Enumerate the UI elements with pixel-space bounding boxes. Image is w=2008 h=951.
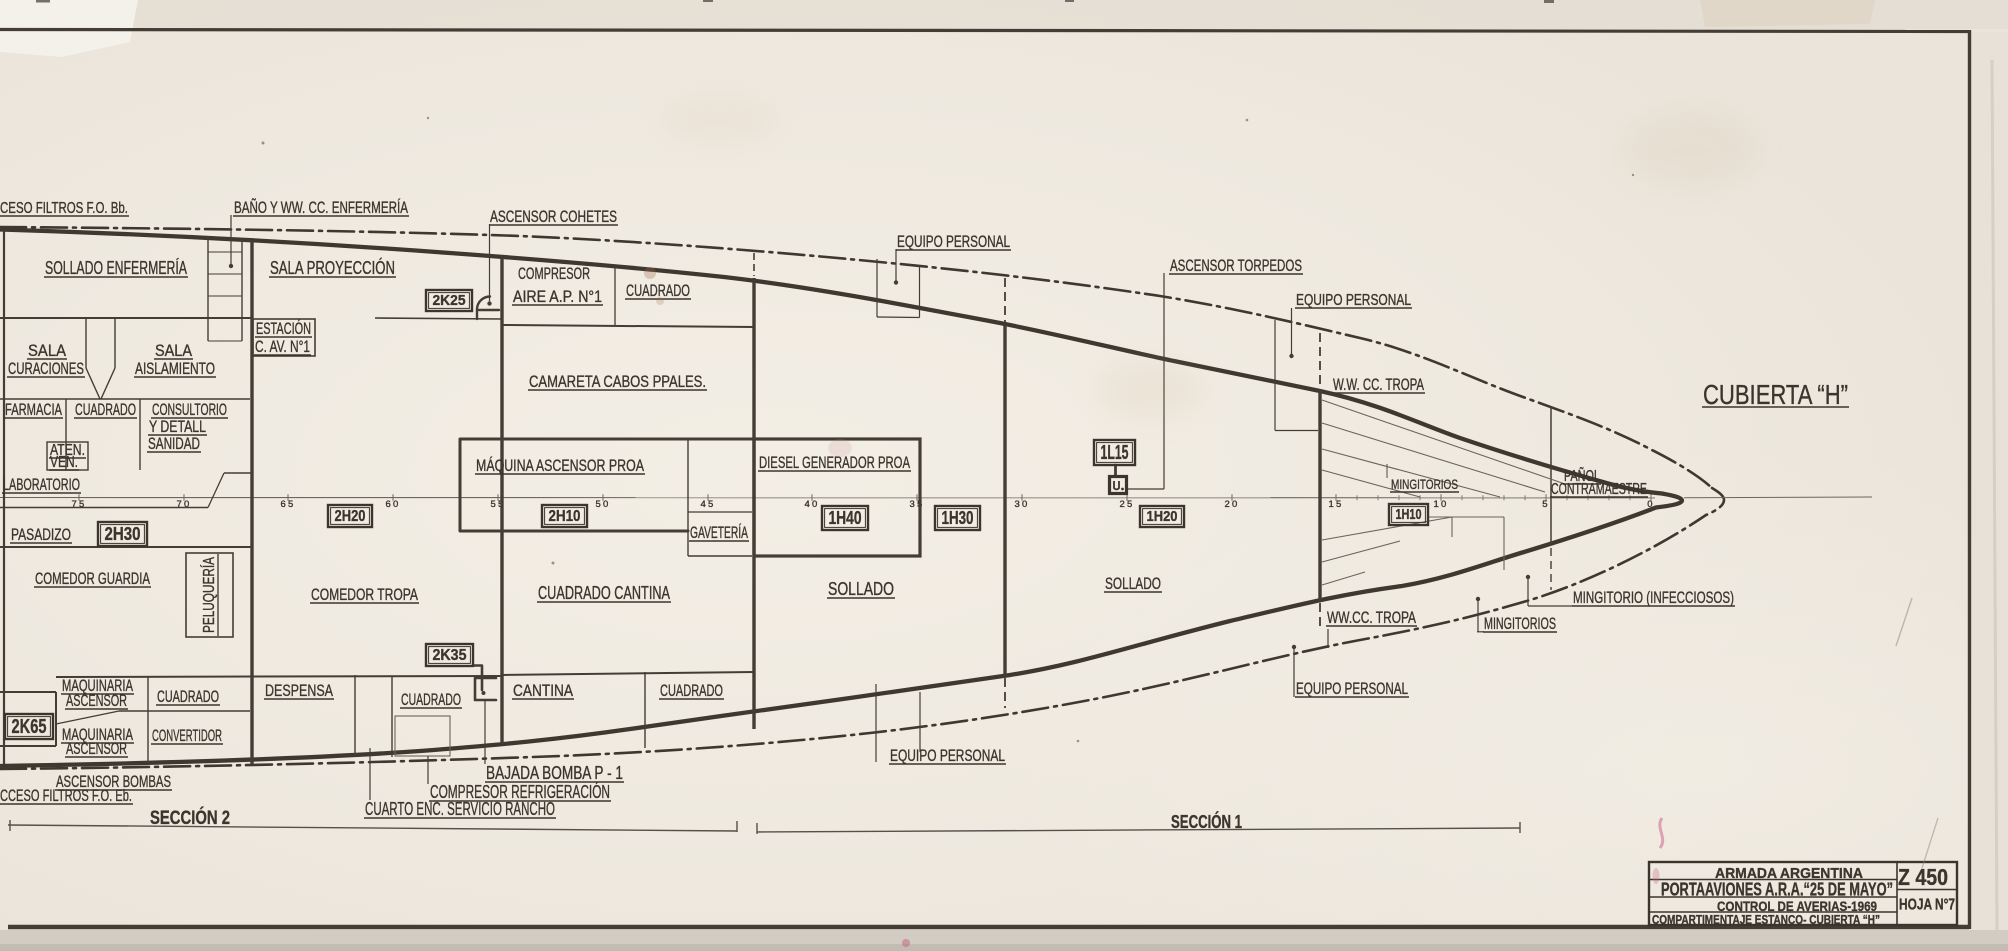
svg-text:2H20: 2H20 [335,508,366,525]
svg-text:AIRE A.P. N°1: AIRE A.P. N°1 [513,287,602,306]
svg-text:EQUIPO PERSONAL: EQUIPO PERSONAL [1296,292,1411,309]
svg-text:COMEDOR GUARDIA: COMEDOR GUARDIA [35,569,151,588]
svg-text:CUADRADO: CUADRADO [401,690,461,709]
svg-text:W.W. CC. TROPA: W.W. CC. TROPA [1333,375,1425,394]
svg-text:HOJA N°7: HOJA N°7 [1899,897,1955,914]
svg-text:60: 60 [386,499,401,510]
svg-text:SOLLADO ENFERMERÍA: SOLLADO ENFERMERÍA [45,258,188,278]
svg-text:SALA: SALA [28,341,67,360]
svg-text:LABORATORIO: LABORATORIO [3,475,80,494]
svg-text:1H30: 1H30 [942,507,974,528]
svg-text:DESPENSA: DESPENSA [265,681,334,700]
svg-text:0: 0 [1647,499,1654,510]
svg-text:EQUIPO PERSONAL: EQUIPO PERSONAL [1296,679,1408,698]
svg-text:CUARTO ENC. SERVICIO RANCHO: CUARTO ENC. SERVICIO RANCHO [365,799,555,819]
svg-text:CUADRADO: CUADRADO [75,400,136,419]
svg-text:1L15: 1L15 [1101,442,1129,464]
svg-text:CUADRADO CANTINA: CUADRADO CANTINA [538,583,671,603]
svg-text:CUADRADO: CUADRADO [157,687,219,706]
svg-text:PORTAAVIONES A.R.A.“25 DE MAYO: PORTAAVIONES A.R.A.“25 DE MAYO” [1661,880,1893,900]
svg-text:C. AV. N°1: C. AV. N°1 [255,337,310,356]
svg-text:SOLLADO: SOLLADO [1105,574,1161,593]
svg-text:65: 65 [281,499,296,510]
svg-text:SANIDAD: SANIDAD [148,434,200,453]
svg-text:CONVERTIDOR: CONVERTIDOR [152,726,222,745]
svg-text:EQUIPO PERSONAL: EQUIPO PERSONAL [897,232,1010,251]
svg-text:PASADIZO: PASADIZO [11,525,71,544]
svg-text:PELUQUERÍA: PELUQUERÍA [201,557,218,633]
svg-text:2H30: 2H30 [105,523,141,544]
svg-text:COMPRESOR: COMPRESOR [518,264,590,283]
svg-text:Z 450: Z 450 [1898,864,1948,890]
svg-text:1H20: 1H20 [1147,509,1178,525]
svg-text:2K35: 2K35 [433,647,467,664]
svg-text:COMPARTIMENTAJE ESTANCO- CUBIE: COMPARTIMENTAJE ESTANCO- CUBIERTA “H” [1652,912,1880,927]
svg-text:1H10: 1H10 [1396,507,1422,523]
svg-text:SECCIÓN 1: SECCIÓN 1 [1171,811,1242,832]
svg-text:VEN.: VEN. [50,454,78,471]
svg-text:2K65: 2K65 [12,716,47,738]
svg-text:45: 45 [701,499,716,510]
svg-text:2H10: 2H10 [549,508,581,525]
svg-text:EQUIPO PERSONAL: EQUIPO PERSONAL [890,746,1005,765]
svg-text:CONTRAMAESTRE: CONTRAMAESTRE [1551,481,1647,498]
svg-text:COMEDOR TROPA: COMEDOR TROPA [311,585,419,604]
svg-text:MINGITORIOS: MINGITORIOS [1391,476,1458,492]
svg-text:FARMACIA: FARMACIA [5,400,63,419]
svg-text:15: 15 [1329,499,1344,510]
svg-text:SOLLADO: SOLLADO [828,579,894,599]
svg-text:CANTINA: CANTINA [513,681,574,700]
svg-text:ASCENSOR COHETES: ASCENSOR COHETES [490,207,617,226]
svg-text:1H40: 1H40 [829,507,862,528]
svg-text:AISLAMIENTO: AISLAMIENTO [135,359,215,378]
svg-text:25: 25 [1120,499,1135,510]
svg-text:CUADRADO: CUADRADO [626,281,690,300]
svg-text:BAJADA BOMBA P - 1: BAJADA BOMBA P - 1 [486,763,623,783]
svg-text:GAVETERÍA: GAVETERÍA [690,523,749,542]
svg-text:SALA PROYECCIÓN: SALA PROYECCIÓN [270,257,395,278]
svg-text:CCESO FILTROS F.O. Eb.: CCESO FILTROS F.O. Eb. [0,786,132,805]
svg-text:CUBIERTA “H”: CUBIERTA “H” [1703,379,1848,410]
svg-text:20: 20 [1225,499,1240,510]
svg-text:35: 35 [910,499,925,510]
svg-text:ASCENSOR: ASCENSOR [66,691,127,710]
svg-text:2K25: 2K25 [433,293,466,309]
svg-text:MINGITORIOS: MINGITORIOS [1484,614,1556,633]
svg-text:SALA: SALA [155,341,193,360]
svg-text:50: 50 [596,499,611,510]
svg-text:MÁQUINA ASCENSOR PROA: MÁQUINA ASCENSOR PROA [476,456,645,475]
svg-text:ASCENSOR: ASCENSOR [66,739,127,758]
svg-text:BAÑO Y WW. CC. ENFERMERÍA: BAÑO Y WW. CC. ENFERMERÍA [234,197,409,217]
svg-text:5: 5 [1542,499,1549,510]
svg-text:CAMARETA CABOS PPALES.: CAMARETA CABOS PPALES. [529,372,706,391]
svg-text:ESTACIÓN: ESTACIÓN [256,319,311,338]
svg-text:CUADRADO: CUADRADO [660,681,723,700]
svg-text:30: 30 [1015,499,1030,510]
svg-text:MINGITORIO (INFECCIOSOS): MINGITORIO (INFECCIOSOS) [1573,588,1734,607]
svg-text:CESO FILTROS F.O. Bb.: CESO FILTROS F.O. Bb. [0,200,128,217]
svg-text:SECCIÓN 2: SECCIÓN 2 [150,805,230,829]
svg-text:WW.CC. TROPA: WW.CC. TROPA [1327,608,1417,627]
svg-text:40: 40 [805,499,820,510]
svg-text:10: 10 [1434,499,1449,510]
svg-text:ASCENSOR TORPEDOS: ASCENSOR TORPEDOS [1170,256,1302,275]
svg-text:CURACIONES: CURACIONES [8,359,84,378]
